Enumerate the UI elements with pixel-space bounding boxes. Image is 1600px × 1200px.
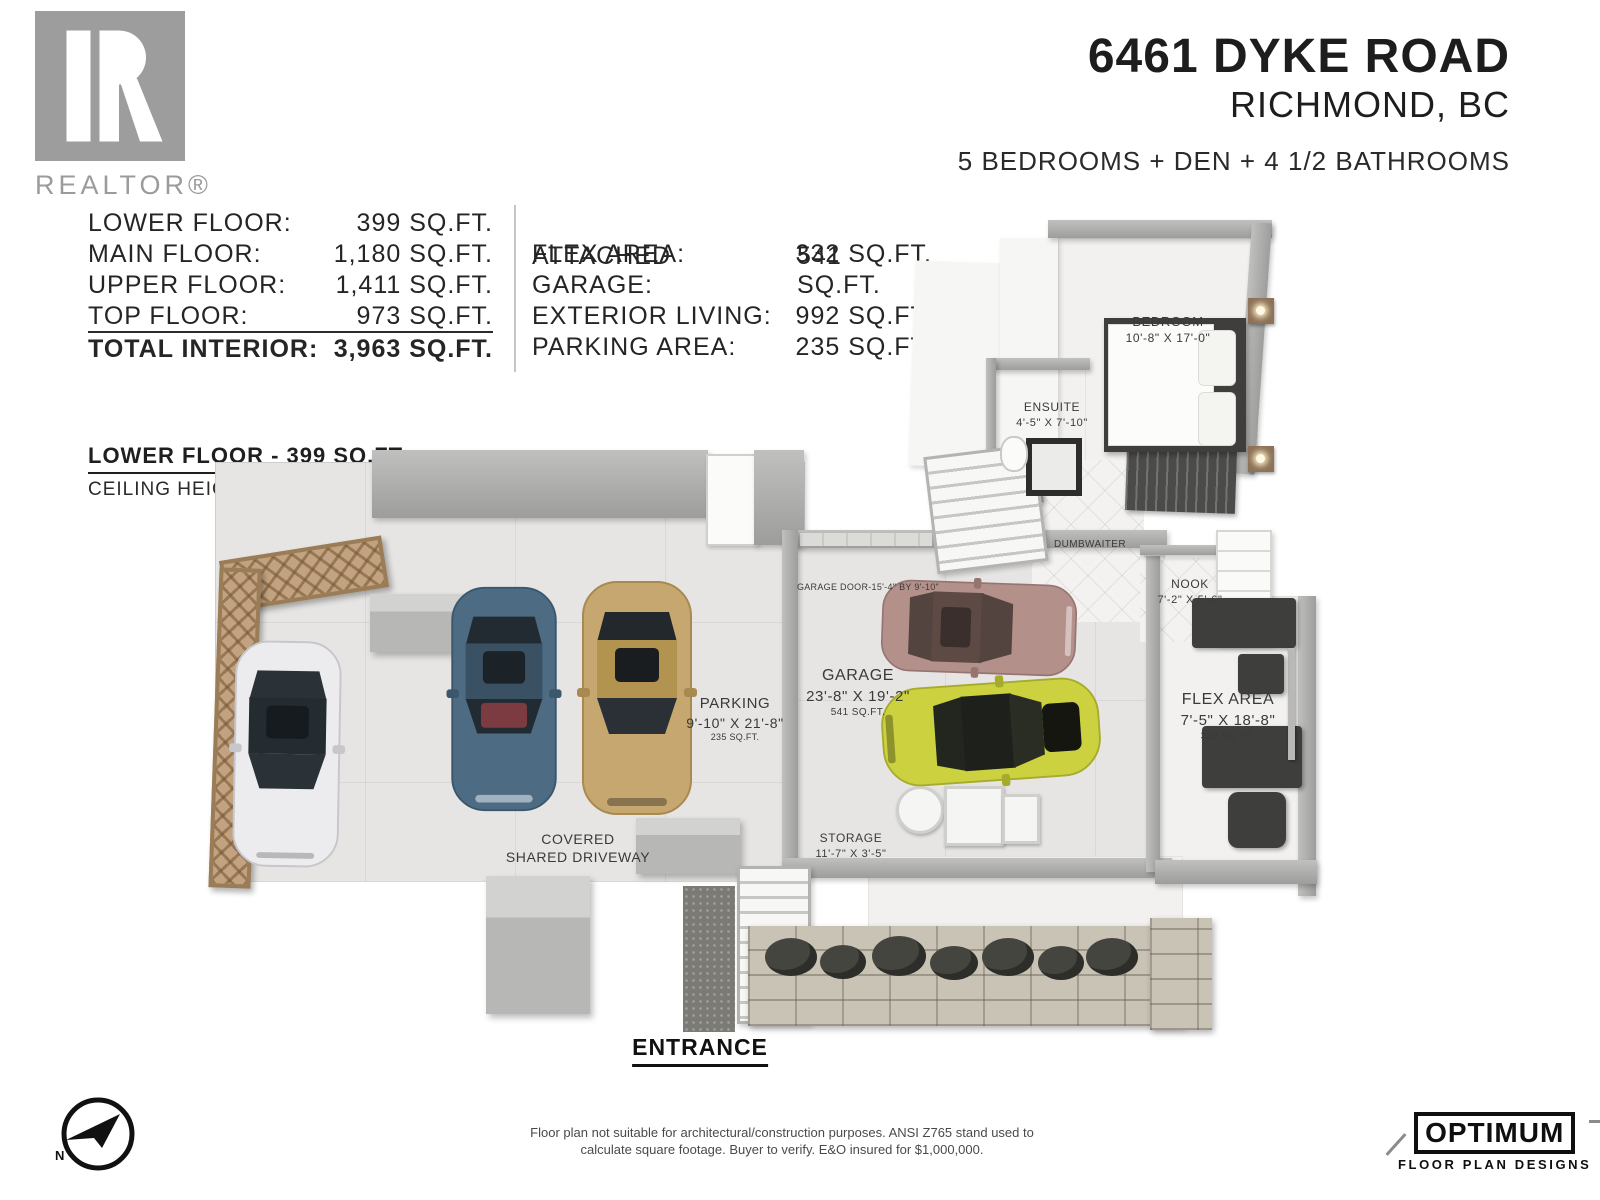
utility-box-small [1002, 794, 1040, 844]
gym-barbell [1288, 648, 1295, 760]
parking-label: PARKING 9'-10" X 21'-8" 235 SQ.FT. [686, 694, 783, 743]
gym-bench [1228, 792, 1286, 848]
entry-door [706, 454, 758, 546]
floor-plan-page: REALTOR® 6461 DYKE ROAD RICHMOND, BC 5 B… [0, 0, 1600, 1200]
tape-measure-icon [1589, 1120, 1600, 1123]
row-value: 1,411 SQ.FT. [336, 271, 493, 300]
title-block: 6461 DYKE ROAD RICHMOND, BC 5 BEDROOMS +… [958, 32, 1510, 177]
garage-door-panel [800, 533, 932, 546]
blue-car [444, 584, 564, 814]
utility-box [944, 786, 1004, 846]
row-value: 3,963 SQ.FT. [334, 335, 493, 364]
row-label: MAIN FLOOR: [88, 240, 262, 269]
compass-n-label: N [55, 1148, 64, 1163]
bedroom-label: BEDROOM 10'-8" X 17'-0" [1126, 314, 1211, 346]
gold-car [577, 572, 697, 824]
table-row: MAIN FLOOR: 1,180 SQ.FT. [88, 238, 493, 269]
area-table-right: FLEX AREA: 332 SQ.FT. ATTACHED GARAGE: 5… [532, 238, 932, 362]
table-row: TOP FLOOR: 973 SQ.FT. [88, 300, 493, 333]
concrete-block-lower [486, 876, 590, 1014]
table-row-total: TOTAL INTERIOR: 3,963 SQ.FT. [88, 333, 493, 364]
gravel-strip [683, 886, 735, 1032]
row-label: TOTAL INTERIOR: [88, 335, 318, 364]
row-value: 1,180 SQ.FT. [334, 240, 493, 269]
row-label: PARKING AREA: [532, 333, 736, 362]
nook-top-wall [1140, 545, 1220, 555]
suite-left-wall [1000, 238, 1058, 466]
row-label: LOWER FLOOR: [88, 209, 292, 238]
driveway-label: COVERED SHARED DRIVEWAY [506, 830, 650, 866]
nook-label: NOOK 7'-2" X 5'-6" [1157, 577, 1222, 607]
entrance-label: ENTRANCE [632, 1034, 768, 1067]
shrub [765, 938, 817, 976]
table-row: PARKING AREA: 235 SQ.FT. [532, 331, 932, 362]
brand-name: OPTIMUM [1414, 1112, 1575, 1154]
north-compass-icon: N [52, 1094, 140, 1178]
property-specs: 5 BEDROOMS + DEN + 4 1/2 BATHROOMS [958, 146, 1510, 177]
optimum-logo: OPTIMUM FLOOR PLAN DESIGNS [1398, 1112, 1591, 1172]
property-city: RICHMOND, BC [958, 84, 1510, 126]
brand-tagline: FLOOR PLAN DESIGNS [1398, 1157, 1591, 1172]
ensuite-top-wall [990, 358, 1090, 370]
suite-top-wall [1048, 220, 1272, 238]
flex-area-label: FLEX AREA 7'-5" X 18'-8" 332 SQ.FT. [1181, 690, 1276, 743]
shrub [1038, 946, 1084, 980]
driveway-header-wall [372, 450, 708, 518]
table-row: ATTACHED GARAGE: 541 SQ.FT. [532, 269, 932, 300]
disclaimer-line1: Floor plan not suitable for architectura… [530, 1124, 1034, 1141]
garage-bottom-wall [782, 858, 1172, 878]
tape-hook-icon [1386, 1133, 1407, 1156]
shrub [872, 936, 926, 976]
gym-dumbbell-rack [1238, 654, 1284, 694]
disclaimer-line2: calculate square footage. Buyer to verif… [530, 1141, 1034, 1158]
shrub [820, 945, 866, 979]
shrub [982, 938, 1034, 976]
realtor-logo: REALTOR® [35, 10, 212, 201]
wardrobe-closet [1125, 444, 1237, 514]
row-value: 541 SQ.FT. [797, 242, 932, 300]
stats-divider [514, 205, 516, 372]
lamp-light [1256, 454, 1265, 463]
storage-label: STORAGE 11'-7" X 3'-5" [816, 831, 887, 861]
row-value: 992 SQ.FT. [796, 302, 932, 331]
stone-pillar [1150, 918, 1212, 1030]
row-label: UPPER FLOOR: [88, 271, 286, 300]
row-value: 973 SQ.FT. [357, 302, 493, 331]
area-table-left: LOWER FLOOR: 399 SQ.FT. MAIN FLOOR: 1,18… [88, 207, 493, 364]
shrub [1086, 938, 1138, 976]
lamp-light [1256, 306, 1265, 315]
table-row: UPPER FLOOR: 1,411 SQ.FT. [88, 269, 493, 300]
realtor-wordmark: REALTOR® [35, 170, 212, 201]
realtor-r-icon [35, 10, 185, 162]
row-label: ATTACHED GARAGE: [532, 242, 797, 300]
pillow [1198, 392, 1236, 446]
table-row: EXTERIOR LIVING: 992 SQ.FT. [532, 300, 932, 331]
garage-door-label: GARAGE DOOR-15'-4" BY 9'-10" [797, 582, 939, 594]
table-row: LOWER FLOOR: 399 SQ.FT. [88, 207, 493, 238]
property-address: 6461 DYKE ROAD [958, 32, 1510, 82]
row-label: TOP FLOOR: [88, 302, 249, 331]
dumbwaiter-label: DUMBWAITER [1054, 538, 1126, 551]
row-label: EXTERIOR LIVING: [532, 302, 772, 331]
toilet [1000, 436, 1028, 472]
concrete-pillar [636, 818, 740, 874]
flex-bottom-wall [1155, 860, 1317, 884]
shower-stall [1026, 438, 1082, 496]
white-car [226, 637, 348, 871]
row-value: 399 SQ.FT. [357, 209, 493, 238]
ensuite-label: ENSUITE 4'-5" X 7'-10" [1016, 400, 1088, 430]
garage-left-wall [782, 530, 798, 878]
shrub [930, 946, 978, 980]
garage-label: GARAGE 23'-8" X 19'-2" 541 SQ.FT. [806, 666, 910, 719]
disclaimer-text: Floor plan not suitable for architectura… [530, 1124, 1034, 1158]
